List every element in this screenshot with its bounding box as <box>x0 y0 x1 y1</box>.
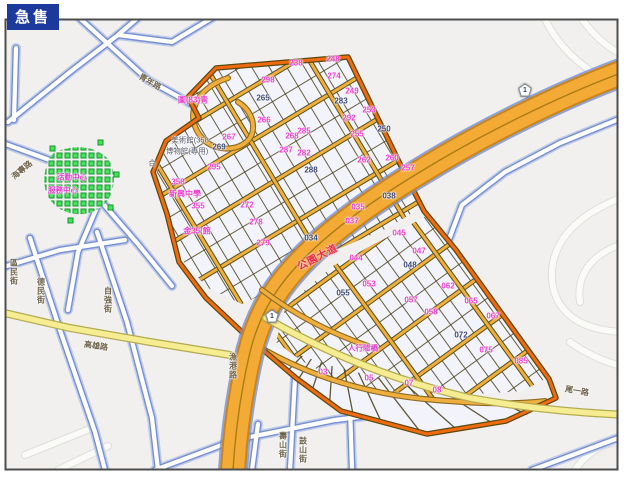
map-viewport[interactable] <box>5 19 618 470</box>
screenshot-root: 青年路海專路區民街德民街自強街高雄路漁港路壽山街鼓山街尾一路公園大道美術館(35… <box>0 0 629 480</box>
urgent-sale-badge: 急售 <box>7 4 59 30</box>
urgent-sale-badge-label: 急售 <box>15 9 51 26</box>
